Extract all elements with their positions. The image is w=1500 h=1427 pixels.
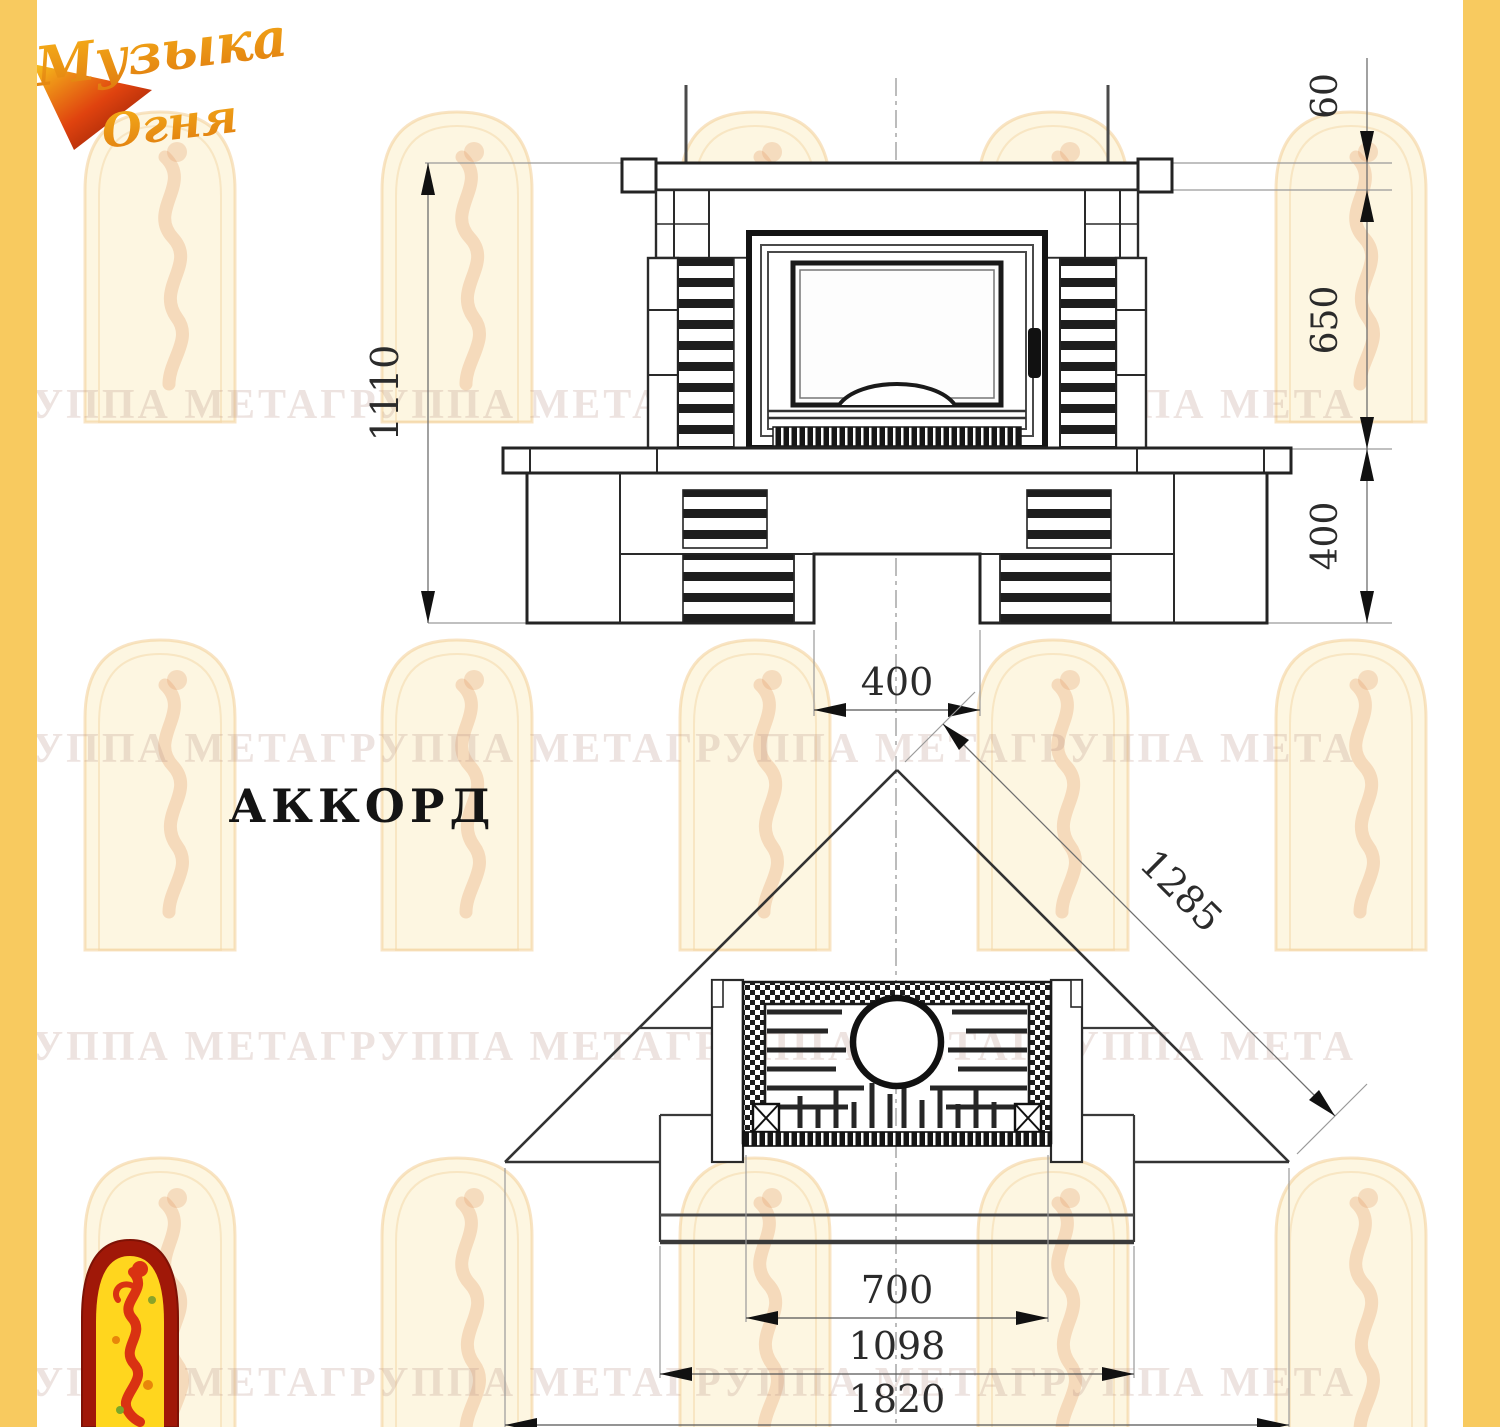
flue-collar-circle bbox=[853, 998, 941, 1086]
dim-label-overall-width: 1820 bbox=[849, 1377, 946, 1421]
dim-label-base-opening: 400 bbox=[861, 660, 934, 704]
door-vent-grille bbox=[773, 427, 1021, 446]
firebox-front-bar bbox=[743, 1132, 1051, 1146]
mantel-shelf bbox=[622, 159, 1172, 192]
hearth-shelf bbox=[503, 448, 1291, 473]
watermark-text: ГРУППА МЕТАГРУППА МЕТАГРУППА МЕТАГРУППА … bbox=[0, 726, 1356, 772]
dim-label-firebox-width: 700 bbox=[861, 1268, 934, 1312]
meta-arch-emblem bbox=[82, 1240, 178, 1427]
watermark-text: ГРУППА МЕТАГРУППА МЕТАГРУППА МЕТАГРУППА … bbox=[0, 1024, 1356, 1070]
dim-label-hearth-width: 1098 bbox=[849, 1324, 946, 1368]
dim-label-middle-height: 650 bbox=[1305, 286, 1346, 355]
dim-label-base-height: 400 bbox=[1305, 502, 1346, 571]
plan-firebox bbox=[743, 982, 1051, 1146]
door-handle bbox=[1028, 328, 1041, 378]
model-name-title: АККОРД bbox=[229, 779, 496, 833]
firebox-door bbox=[749, 233, 1045, 448]
page: ГРУППА МЕТАГРУППА МЕТАГРУППА МЕТАГРУППА … bbox=[0, 0, 1500, 1427]
fireplace-technical-drawing: ГРУППА МЕТАГРУППА МЕТАГРУППА МЕТАГРУППА … bbox=[0, 0, 1500, 1427]
dim-label-total-height: 1110 bbox=[363, 345, 407, 442]
dim-label-mantel-thickness: 60 bbox=[1305, 73, 1346, 119]
side-stripe-right bbox=[1463, 0, 1500, 1427]
side-stripe-left bbox=[0, 0, 37, 1427]
watermark-text: ГРУППА МЕТАГРУППА МЕТАГРУППА МЕТАГРУППА … bbox=[0, 1360, 1356, 1406]
